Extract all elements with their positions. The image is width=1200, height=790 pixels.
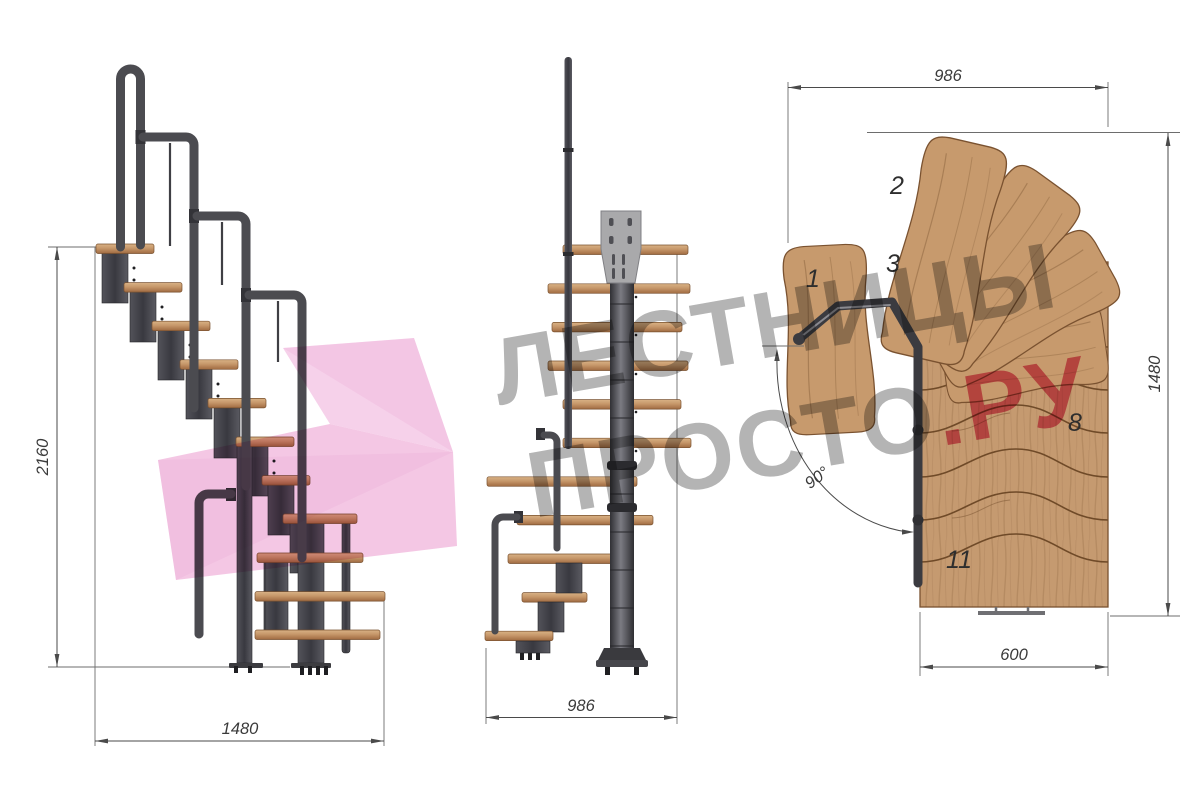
- tread-number-2: 2: [889, 172, 904, 200]
- tread-number-11: 11: [946, 546, 972, 574]
- dim-plan-flight-width: 600: [1000, 646, 1028, 664]
- dim-side-depth: 1480: [222, 720, 260, 738]
- dim-plan-width: 986: [934, 67, 962, 85]
- dim-front-width: 986: [567, 697, 595, 715]
- staircase-drawing: 2160 1480: [0, 0, 1200, 790]
- dim-plan-length: 1480: [1146, 355, 1164, 393]
- dim-side-height: 2160: [34, 438, 52, 477]
- mount-plate: [601, 211, 641, 283]
- drawing-canvas: 2160 1480: [0, 0, 1200, 790]
